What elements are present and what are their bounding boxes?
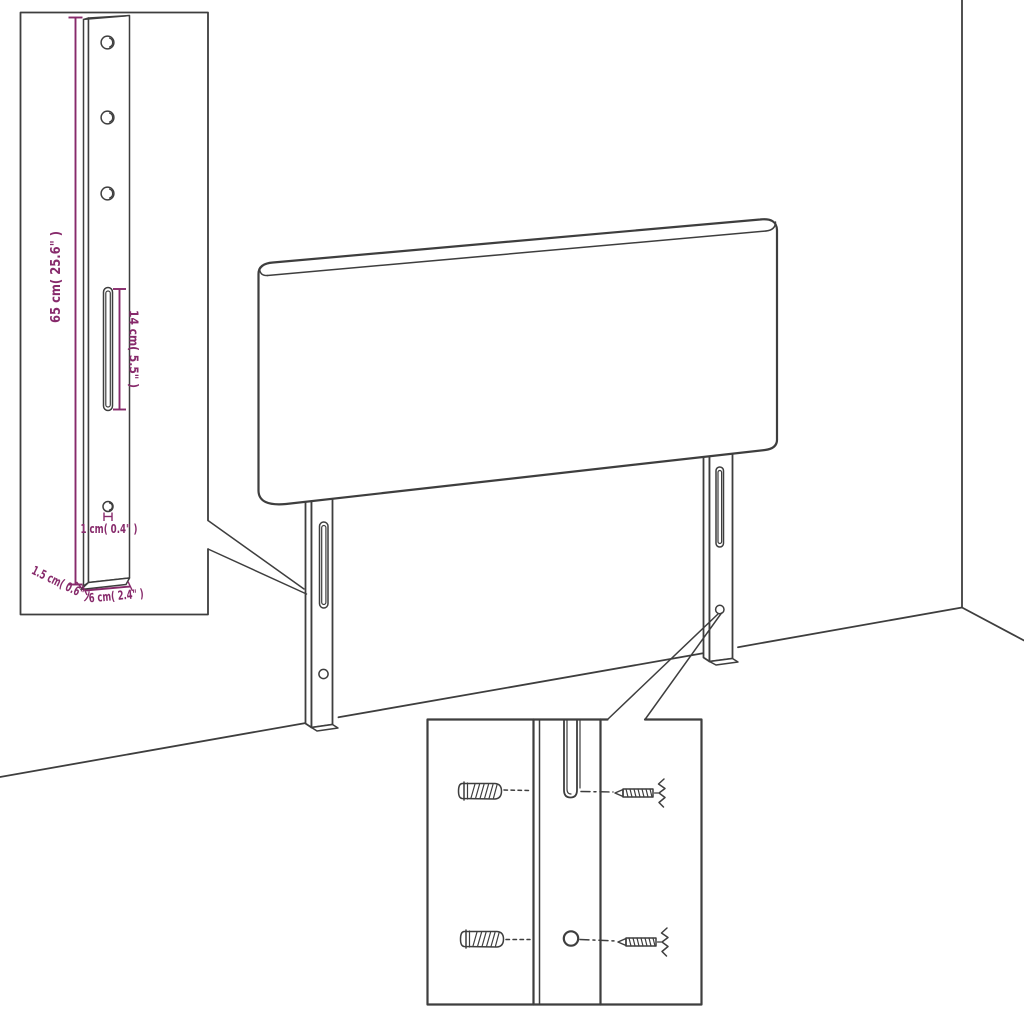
headboard-panel bbox=[259, 219, 778, 504]
mounting-detail-inset bbox=[428, 720, 702, 1005]
leg-detail-inset: 65 cm( 25.6" ) 14 cm( 5.5" ) 1 cm( 0.4" … bbox=[21, 13, 209, 615]
diagram-page: 65 cm( 25.6" ) 14 cm( 5.5" ) 1 cm( 0.4" … bbox=[0, 0, 1024, 1024]
headboard-left-leg bbox=[306, 489, 339, 731]
leg-detail-callout-lines bbox=[208, 521, 307, 595]
detail-leg-front-face bbox=[89, 16, 130, 583]
floor-line-middle bbox=[339, 653, 704, 717]
dim-leg-height-label: 65 cm( 25.6" ) bbox=[48, 231, 64, 323]
plug-leader-top bbox=[504, 790, 531, 791]
floor-line-left bbox=[0, 723, 305, 777]
dim-hole-size-label: 1 cm( 0.4" ) bbox=[81, 521, 138, 536]
leg-detail-drawing bbox=[81, 16, 130, 590]
floor-line-right bbox=[738, 608, 1024, 648]
dim-slot-length-label: 14 cm( 5.5" ) bbox=[127, 310, 142, 388]
diagram-canvas: 65 cm( 25.6" ) 14 cm( 5.5" ) 1 cm( 0.4" … bbox=[0, 0, 1024, 1024]
headboard-panel-front bbox=[259, 219, 778, 504]
